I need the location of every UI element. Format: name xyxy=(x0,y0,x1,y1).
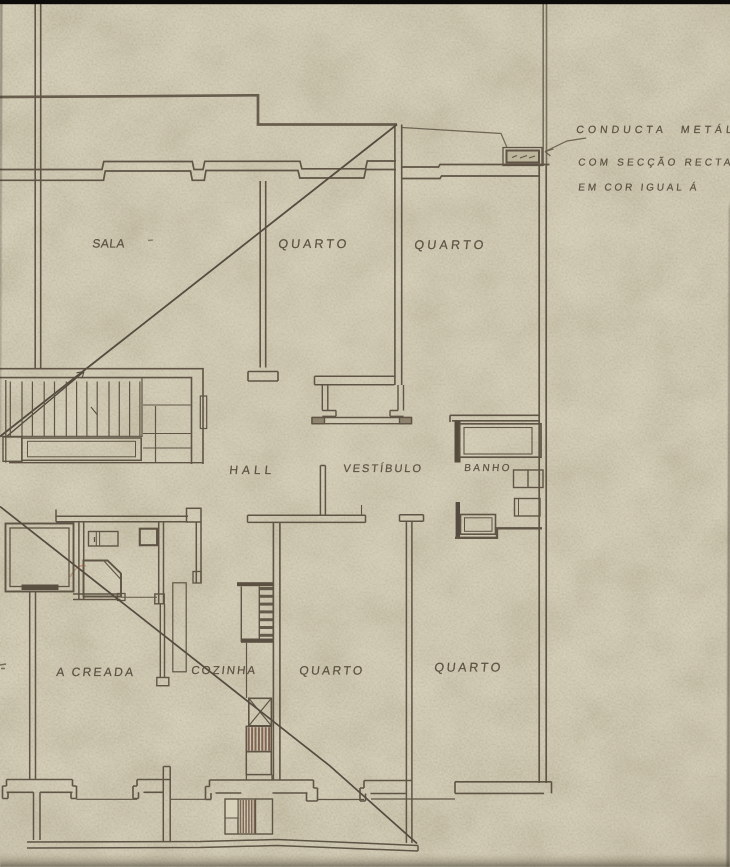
svg-text:QUARTO: QUARTO xyxy=(414,238,488,252)
svg-text:COM SECÇÃO RECTA: COM SECÇÃO RECTA xyxy=(578,156,730,169)
svg-text:HALL: HALL xyxy=(229,463,276,477)
svg-text:BANHO: BANHO xyxy=(464,463,513,474)
svg-text:QUARTO: QUARTO xyxy=(434,661,504,675)
svg-text:EM COR IGUAL Á: EM COR IGUAL Á xyxy=(578,181,700,194)
svg-text:QUARTO: QUARTO xyxy=(278,237,350,251)
svg-text:COZINHA: COZINHA xyxy=(191,665,258,677)
svg-text:VESTÍBULO: VESTÍBULO xyxy=(343,462,424,475)
svg-text:CONDUCTA METÁLICA: CONDUCTA METÁLICA xyxy=(576,123,730,136)
svg-text:A CREADA: A CREADA xyxy=(56,665,136,679)
svg-text:QUARTO: QUARTO xyxy=(299,664,366,678)
svg-text:SALA: SALA xyxy=(92,237,126,251)
